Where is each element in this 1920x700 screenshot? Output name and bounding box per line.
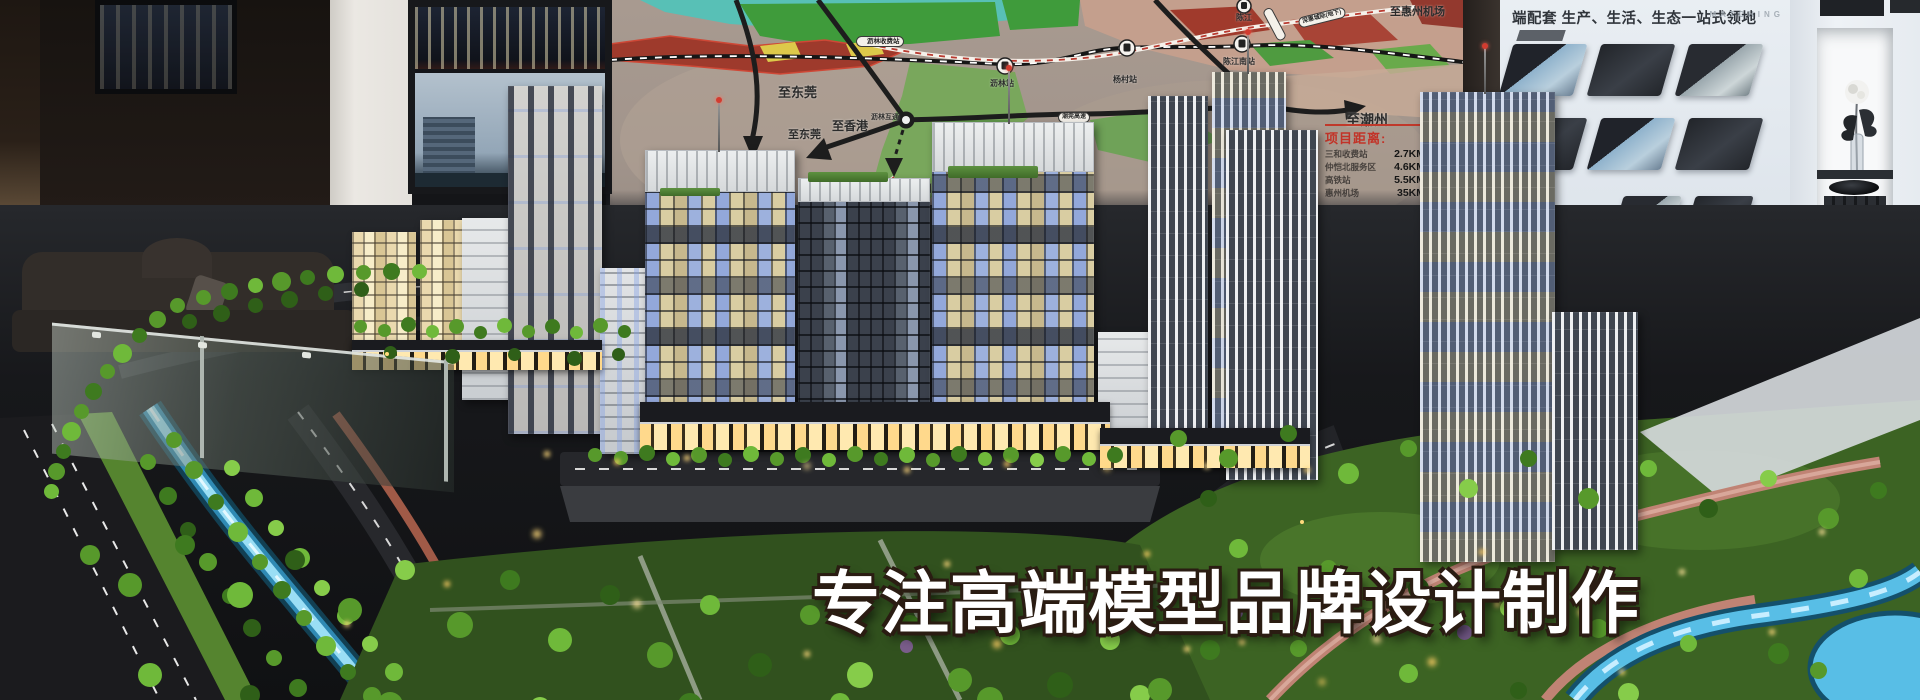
- retail-podium: [1100, 428, 1310, 468]
- lit-shopfronts: [1100, 444, 1310, 468]
- roof-antenna: [1008, 68, 1010, 124]
- tree-row-boulevard: [588, 448, 602, 462]
- model-building: [462, 218, 512, 400]
- model-glass-tower: [1148, 96, 1208, 454]
- sofa-headrest: [142, 238, 212, 278]
- building-crown: [932, 122, 1094, 172]
- roof-garden: [808, 172, 888, 182]
- model-showroom-photo: 至东莞 至东莞 至香港 至深圳 至潮州 至惠州机场 沥林收费站 沥林站 杨村站 …: [0, 0, 1920, 700]
- roof-antenna: [718, 100, 720, 152]
- tree-row: [354, 320, 367, 333]
- retail-podium: [640, 402, 1110, 450]
- model-tower: [508, 86, 602, 434]
- glass-post: [444, 359, 448, 481]
- model-glass-tower: [1552, 312, 1638, 550]
- roof-antenna: [1247, 32, 1249, 74]
- tree-cluster-foreground: [80, 545, 100, 565]
- roof-garden: [948, 166, 1038, 178]
- building-crown: [645, 150, 795, 192]
- tree-cluster-park: [1170, 430, 1187, 447]
- glass-clip: [198, 342, 207, 349]
- watermark-tagline: 专注高端模型品牌设计制作: [812, 548, 1640, 647]
- model-park-lights: [1300, 520, 1304, 524]
- roof-antenna: [1484, 46, 1486, 94]
- roof-garden: [660, 188, 720, 196]
- glass-clip: [302, 352, 311, 359]
- tree-cluster: [170, 298, 185, 313]
- tree-cluster-canal: [166, 432, 182, 448]
- model-glass-tower: [1420, 92, 1555, 562]
- glass-clip: [92, 331, 101, 338]
- lit-shopfronts: [640, 422, 1110, 450]
- model-street-lights: [385, 352, 389, 356]
- glass-post: [200, 336, 204, 458]
